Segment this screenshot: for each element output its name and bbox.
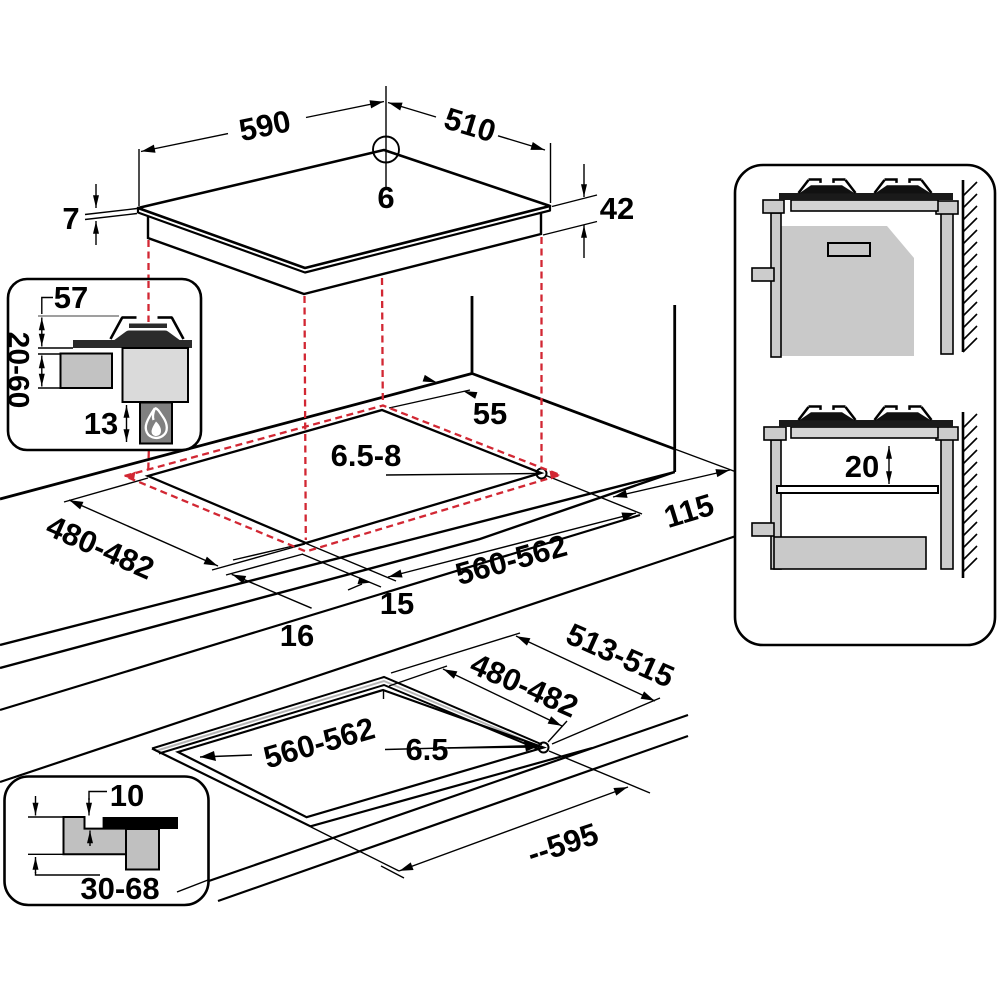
svg-text:20-60: 20-60: [2, 332, 35, 409]
svg-text:115: 115: [660, 487, 718, 535]
svg-text:10: 10: [110, 778, 144, 813]
svg-text:55: 55: [473, 396, 507, 431]
svg-text:16: 16: [280, 618, 314, 653]
svg-text:15: 15: [380, 586, 414, 621]
svg-text:513-515: 513-515: [561, 616, 679, 694]
svg-text:7: 7: [62, 201, 79, 236]
svg-text:6.5-8: 6.5-8: [331, 438, 402, 473]
svg-text:42: 42: [600, 191, 634, 226]
svg-text:6: 6: [377, 180, 394, 215]
svg-text:480-482: 480-482: [41, 508, 159, 586]
svg-text:510: 510: [440, 101, 500, 150]
svg-text:590: 590: [236, 103, 294, 148]
svg-text:560-562: 560-562: [452, 528, 571, 592]
svg-text:--595: --595: [523, 816, 603, 872]
svg-text:30-68: 30-68: [80, 871, 159, 906]
svg-text:57: 57: [54, 280, 88, 315]
svg-text:20: 20: [845, 449, 879, 484]
svg-text:560-562: 560-562: [260, 710, 379, 775]
svg-text:480-482: 480-482: [465, 646, 583, 724]
svg-text:13: 13: [84, 406, 118, 441]
